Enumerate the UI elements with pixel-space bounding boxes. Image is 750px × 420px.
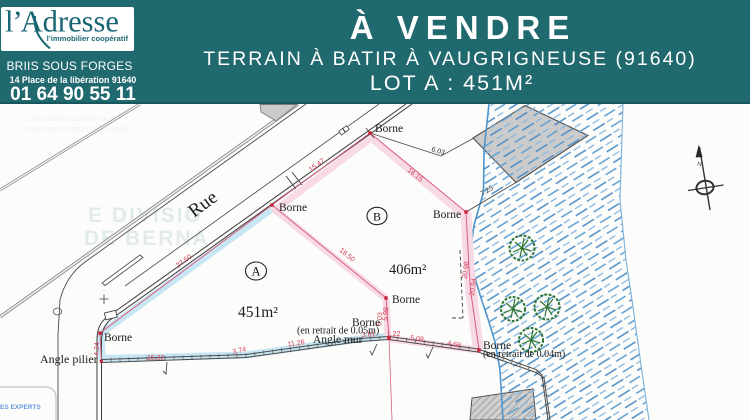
svg-text:N: N [697, 162, 702, 169]
svg-text:(en retrait de 0.04m): (en retrait de 0.04m) [483, 349, 565, 360]
svg-text:ES EXPERTS: ES EXPERTS [0, 404, 41, 411]
svg-text:A: A [251, 265, 260, 279]
svg-text:15.32: 15.32 [147, 355, 165, 362]
svg-text:Borne: Borne [375, 123, 403, 135]
svg-text:406m²: 406m² [389, 262, 427, 278]
svg-text:pour vendre acheter louer: pour vendre acheter louer [30, 114, 116, 123]
svg-text:451m²: 451m² [238, 304, 278, 321]
svg-text:conseil en immobilier estimati: conseil en immobilier estimation [22, 124, 128, 133]
svg-text:B: B [373, 210, 381, 224]
svg-text:Borne: Borne [279, 202, 307, 214]
svg-text:Borne: Borne [392, 294, 420, 306]
svg-text:Angle pilier: Angle pilier [40, 352, 98, 366]
svg-text:1.22: 1.22 [387, 331, 401, 339]
svg-text:Angle mur: Angle mur [313, 334, 363, 346]
svg-text:Borne: Borne [433, 209, 461, 221]
svg-text:l’immobilier coopératif: l’immobilier coopératif [47, 34, 129, 43]
svg-text:Borne: Borne [104, 332, 132, 344]
